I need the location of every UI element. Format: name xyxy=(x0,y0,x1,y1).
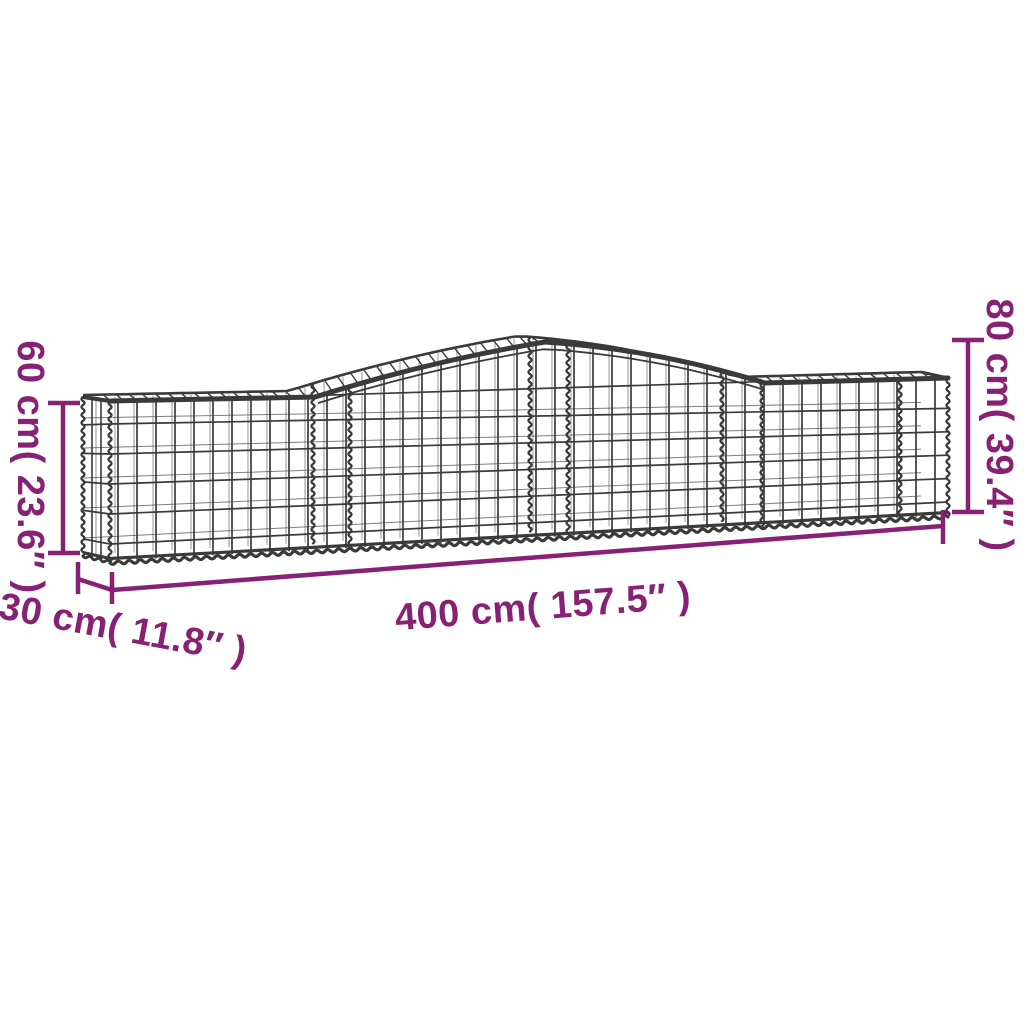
length-label: 400 cm( 157.5″ ) xyxy=(394,575,693,640)
height-left-dimension: 60 cm( 23.6″ ) xyxy=(9,340,80,593)
height-right-dimension: 80 cm( 39.4″ ) xyxy=(952,298,1020,551)
length-dimension: 400 cm( 157.5″ ) xyxy=(112,510,943,639)
height-left-label: 60 cm( 23.6″ ) xyxy=(9,340,51,593)
depth-label: 30 cm( 11.8″ ) xyxy=(0,585,250,672)
depth-line xyxy=(78,579,112,590)
height-right-label: 80 cm( 39.4″ ) xyxy=(978,298,1020,551)
diagram-canvas: 60 cm( 23.6″ ) 80 cm( 39.4″ ) 30 cm( 11.… xyxy=(0,0,1024,1024)
gabion-left-end-face xyxy=(83,397,110,560)
product-dimension-diagram: 60 cm( 23.6″ ) 80 cm( 39.4″ ) 30 cm( 11.… xyxy=(0,0,1024,1024)
gabion-spiral-joints xyxy=(82,338,950,562)
gabion-basket-wireframe xyxy=(82,337,950,565)
